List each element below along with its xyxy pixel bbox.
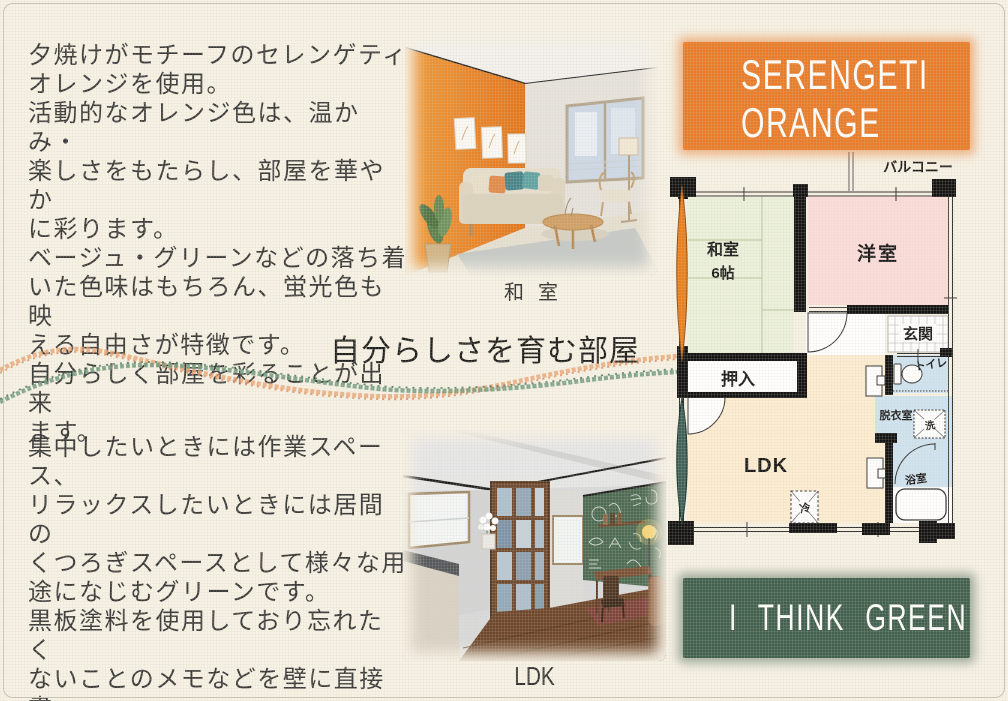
i-think-green-banner: I THINK GREEN (683, 578, 970, 658)
window (553, 516, 583, 564)
description-line: 活動的なオレンジ色は、温かみ・ (28, 99, 408, 157)
youshitsu-label: 洋室 (857, 242, 899, 265)
washitsu-room: 和室 6帖 (688, 196, 794, 353)
description-line: に彩ります。 (28, 215, 408, 244)
genkan-room: 玄関 (888, 316, 948, 352)
washitsu-label: 和室 (707, 240, 739, 259)
dressing-room-label: 脱衣室 (880, 408, 913, 422)
oshiire-label: 押入 (721, 369, 755, 389)
orange-room-marker (677, 186, 688, 361)
washitsu-size-label: 6帖 (711, 264, 734, 282)
description-line: 途になじむグリーンです。 (28, 578, 408, 607)
refrigerator-space: 冷 (791, 491, 818, 523)
genkan-label: 玄関 (903, 325, 933, 343)
photo-ldk-room (403, 430, 666, 661)
description-line: 夕焼けがモチーフのセレンゲティ (28, 41, 408, 70)
page-title: 自分らしさを育む部屋 (330, 326, 640, 370)
description-line: くつろぎスペースとして様々な用 (28, 549, 408, 578)
youshitsu-room: 洋室 (808, 196, 948, 305)
floorplan: バルコニー 和室 6帖 洋室 LDK (663, 150, 985, 552)
armchair (648, 576, 666, 626)
description-line: オレンジを使用。 (28, 70, 408, 99)
photo-caption-ldk: LDK (429, 661, 639, 692)
description-line: 集中したいときには作業スペース、 (28, 433, 408, 491)
banner-text-line: SERENGETI (741, 51, 906, 99)
window (409, 492, 469, 548)
ldk-label: LDK (744, 455, 788, 477)
description-line: ないことのメモなどを壁に直接書 (28, 665, 408, 701)
green-description-block: 集中したいときには作業スペース、 リラックスしたいときには居間の くつろぎスペー… (28, 433, 408, 701)
photo-washitsu-room (405, 32, 657, 276)
serengeti-orange-banner: SERENGETI ORANGE (683, 42, 970, 150)
washbasin (867, 458, 886, 488)
teal-room-marker (677, 397, 688, 525)
balcony-label: バルコニー (883, 159, 953, 175)
description-line: リラックスしたいときには居間の (28, 491, 408, 549)
photo-caption-washitsu: 和室 (405, 276, 657, 305)
description-line: いた色味はもちろん、蛍光色も映 (28, 273, 408, 331)
banner-text-line: I THINK GREEN (729, 599, 903, 637)
kitchen-sink (866, 366, 885, 396)
description-line: 楽しさをもたらし、部屋を華やか (28, 157, 408, 215)
brochure-page: 夕焼けがモチーフのセレンゲティ オレンジを使用。 活動的なオレンジ色は、温かみ・… (0, 0, 1008, 701)
description-line: 黒板塗料を使用しており忘れたく (28, 607, 408, 665)
description-line: ベージュ・グリーンなどの落ち着 (28, 244, 408, 273)
oshiire-closet: 押入 (688, 361, 797, 392)
bath-room: 浴室 (893, 443, 953, 523)
toilet-room: トイレ (893, 355, 948, 393)
banner-text-line: ORANGE (741, 99, 906, 147)
